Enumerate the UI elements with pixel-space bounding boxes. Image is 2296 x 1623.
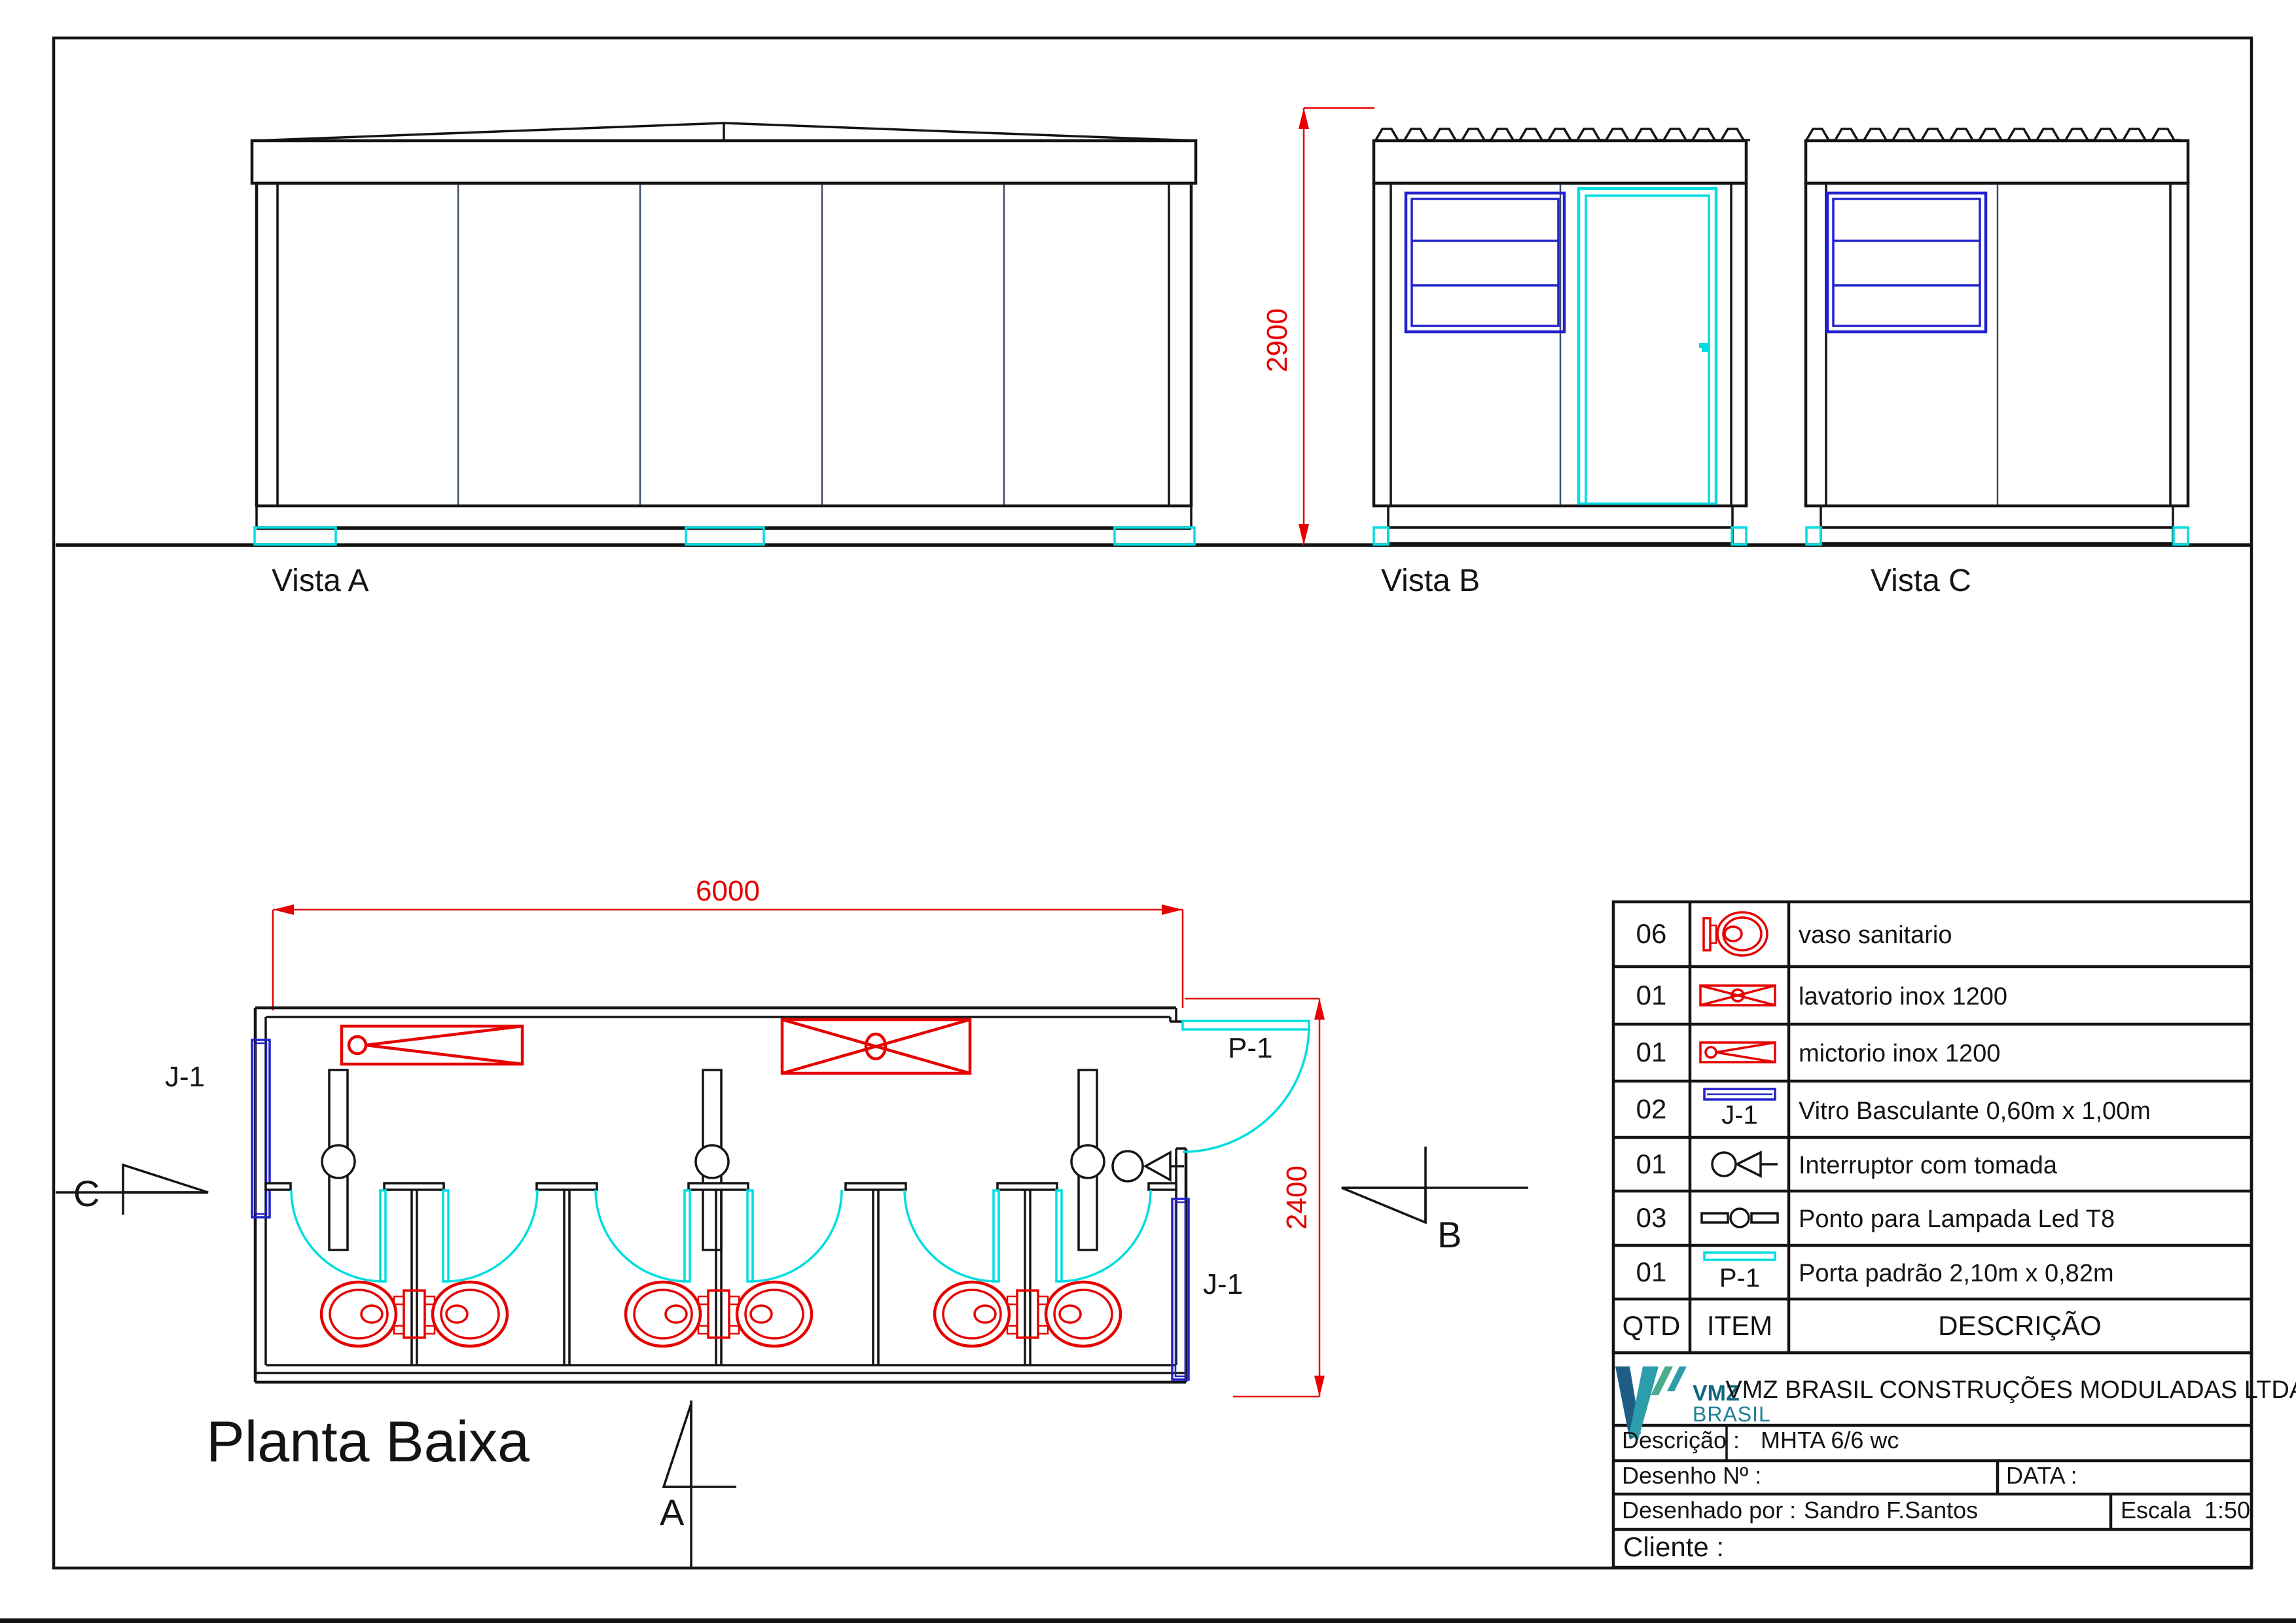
toilet-drain	[666, 1306, 687, 1323]
corner-foot	[1374, 527, 1388, 544]
stall-door-leaf	[1056, 1190, 1062, 1281]
stall-door-arc	[446, 1190, 537, 1281]
company-name: VMZ BRASIL CONSTRUÇÕES MODULADAS LTDA.	[1725, 1375, 2296, 1404]
door-tag: P-1	[1228, 1032, 1272, 1064]
legend-description: Interruptor com tomada	[1799, 1152, 2058, 1179]
cistern-lug	[1007, 1326, 1017, 1334]
led-lamp-fixture	[696, 1070, 728, 1250]
description-header: DESCRIÇÃO	[1938, 1310, 2102, 1341]
width-dim-label: 6000	[696, 875, 760, 907]
cistern-lug	[1038, 1326, 1048, 1334]
icon-line	[1716, 1043, 1775, 1052]
led-lamp-icon	[1702, 1209, 1778, 1227]
toilet-bowl-inner	[1054, 1290, 1112, 1338]
cistern-lug	[394, 1326, 404, 1334]
window-tag-left: J-1	[165, 1061, 205, 1093]
arrowhead-up	[1314, 999, 1325, 1020]
stall-door-leaf	[443, 1190, 448, 1281]
icon-drain	[1706, 1047, 1716, 1058]
qty-value: 01	[1636, 1257, 1667, 1287]
arrowhead-down	[1299, 524, 1309, 545]
marker-triangle	[123, 1165, 208, 1192]
toilet-bowl-inner	[634, 1290, 692, 1338]
louver-window	[1827, 193, 1986, 332]
switch-outlet-plan	[1113, 1151, 1184, 1181]
cistern	[404, 1291, 425, 1338]
toilet-plan-icon	[1704, 912, 1767, 955]
legend-description: lavatorio inox 1200	[1799, 983, 2007, 1010]
bottom-rail	[1388, 506, 1732, 527]
height-dim-label: 2900	[1261, 308, 1293, 372]
sink-icon	[1700, 986, 1775, 1005]
lamp-circle	[322, 1145, 355, 1178]
scale-value: 1:50	[2204, 1497, 2250, 1524]
legend-description: Ponto para Lampada Led T8	[1799, 1205, 2115, 1233]
cistern-lug	[698, 1296, 708, 1304]
arrowhead-left	[273, 904, 294, 915]
skid-block	[255, 527, 336, 544]
urinal-icon	[1700, 1043, 1775, 1062]
jamb-stub	[846, 1183, 906, 1190]
legend-description: mictorio inox 1200	[1799, 1040, 2000, 1067]
stall-door-arc	[750, 1190, 842, 1281]
cistern-lug	[394, 1296, 404, 1304]
description-value: MHTA 6/6 wc	[1761, 1427, 1899, 1454]
sheet-bottom-edge	[0, 1618, 2296, 1623]
louver-window-inner	[1833, 199, 1980, 326]
icon-lamp-bar	[1702, 1213, 1728, 1222]
stall-door-leaf	[685, 1190, 690, 1281]
icon-lamp-bar	[1751, 1213, 1778, 1222]
toilet-pair	[935, 1282, 1121, 1346]
lamp-circle	[1071, 1145, 1104, 1178]
toilet-pair	[321, 1282, 507, 1346]
legend-description: Vitro Basculante 0,60m x 1,00m	[1799, 1097, 2151, 1125]
cistern-lug	[1007, 1296, 1017, 1304]
jamb-stub	[266, 1183, 291, 1190]
jamb-stub	[384, 1183, 444, 1190]
drawn-by-label: Desenhado por :	[1622, 1497, 1796, 1524]
client-label: Cliente :	[1623, 1531, 1724, 1562]
toilet-drain	[751, 1306, 772, 1323]
section-c-label: C	[73, 1173, 99, 1214]
icon-drain	[1725, 927, 1742, 941]
cistern	[1017, 1291, 1038, 1338]
cistern-lug	[729, 1326, 739, 1334]
icon-circle	[1712, 1152, 1736, 1176]
toilet-bowl-inner	[441, 1290, 499, 1338]
vista-a-label: Vista A	[272, 563, 369, 598]
depth-dim-label: 2400	[1281, 1166, 1313, 1230]
stall-door-leaf	[994, 1190, 999, 1281]
qty-header: QTD	[1623, 1310, 1681, 1341]
led-lamp-fixture	[1071, 1070, 1104, 1250]
qty-value: 01	[1636, 1149, 1667, 1179]
corner-foot	[1806, 527, 1821, 544]
fascia-band	[1806, 141, 2188, 183]
corner-foot	[1732, 527, 1746, 544]
qty-value: 03	[1636, 1202, 1667, 1233]
louver-window	[1406, 193, 1564, 332]
title-block: VMZ BRASIL VMZ BRASIL CONSTRUÇÕES MODULA…	[1613, 1353, 2296, 1567]
stall-door-leaf	[380, 1190, 386, 1281]
icon-cistern	[1704, 918, 1710, 950]
qty-value: 01	[1636, 1037, 1667, 1067]
marker-triangle	[1342, 1188, 1426, 1222]
side-elevation-b: Vista B	[1374, 129, 1750, 598]
switch-outlet-icon	[1712, 1152, 1778, 1176]
item-tag: J-1	[1721, 1101, 1758, 1130]
stall-door-arc	[1059, 1190, 1151, 1281]
lamp-circle	[696, 1145, 728, 1178]
window-tag-right: J-1	[1203, 1268, 1243, 1300]
corner-foot	[2174, 527, 2188, 544]
jamb-stub	[537, 1183, 597, 1190]
toilet-bowl	[321, 1282, 396, 1346]
switch-triangle	[1145, 1152, 1170, 1180]
drawing-sheet: { "views": { "vista_a_label": "Vista A",…	[0, 0, 2296, 1623]
cistern-lug	[1038, 1296, 1048, 1304]
section-marker-a: A	[660, 1400, 736, 1567]
jamb-stub	[1149, 1183, 1176, 1190]
plan-title: Planta Baixa	[206, 1409, 529, 1474]
legend-description: Porta padrão 2,10m x 0,82m	[1799, 1260, 2114, 1287]
window-icon	[1704, 1089, 1775, 1099]
louver-window-inner	[1412, 199, 1558, 326]
wall-body	[257, 183, 1191, 506]
urinal-line	[366, 1026, 522, 1045]
cistern-lug	[425, 1296, 435, 1304]
toilet-bowl	[433, 1282, 507, 1346]
drawing-number-label: Desenho Nº :	[1622, 1462, 1761, 1489]
toilet-pair	[626, 1282, 812, 1346]
arrowhead-down	[1314, 1376, 1325, 1397]
date-label: DATA :	[2006, 1462, 2077, 1489]
switch-circle	[1113, 1151, 1143, 1181]
scale-label: Escala	[2121, 1497, 2192, 1524]
icon-door-bar	[1704, 1253, 1775, 1260]
corrugated-roof	[1806, 129, 2181, 140]
corrugated-roof	[1376, 129, 1750, 140]
stall-door-arc	[596, 1190, 687, 1281]
floor-plan: 6000 2400 J-	[56, 875, 1528, 1567]
toilet-bowl	[737, 1282, 812, 1346]
entry-door	[1579, 188, 1716, 504]
icon-line	[1716, 1052, 1775, 1062]
stall-door-arc	[905, 1190, 996, 1281]
urinal-line	[366, 1045, 522, 1064]
stall-door-leaf	[747, 1190, 753, 1281]
bottom-rail	[1821, 506, 2173, 527]
toilet-drain	[446, 1306, 467, 1323]
entry-door-plan: P-1	[1183, 1021, 1309, 1152]
cistern-lug	[698, 1326, 708, 1334]
toilet-bowl-inner	[330, 1290, 387, 1338]
item-tag: P-1	[1719, 1264, 1760, 1293]
urinal-fixture	[342, 1026, 522, 1064]
base-rail	[1821, 527, 2173, 543]
sheet-canvas: Vista A Vista B 2900	[0, 0, 2296, 1623]
toilet-bowl-inner	[943, 1290, 1001, 1338]
icon-triangle	[1737, 1152, 1761, 1176]
door-leaf	[1183, 1021, 1309, 1029]
section-b-label: B	[1437, 1214, 1462, 1255]
arrowhead-up	[1299, 108, 1309, 129]
qty-value: 06	[1636, 918, 1667, 949]
cistern	[708, 1291, 729, 1338]
section-marker-c: C	[56, 1165, 208, 1215]
door-icon	[1704, 1253, 1775, 1260]
icon-lamp-circle	[1731, 1209, 1749, 1227]
toilet-bowl	[1046, 1282, 1121, 1346]
vista-c-label: Vista C	[1871, 563, 1971, 598]
base-rail	[1388, 527, 1732, 543]
side-elevation-c: Vista C	[1806, 129, 2188, 598]
toilet-bowl-inner	[745, 1290, 803, 1338]
front-elevation: Vista A	[252, 123, 1196, 598]
fascia-band	[252, 141, 1196, 183]
width-dimension: 6000	[273, 875, 1183, 1010]
section-marker-b: B	[1342, 1147, 1528, 1255]
toilet-drain	[361, 1306, 382, 1323]
urinal-drain	[349, 1037, 366, 1054]
jamb-stub	[689, 1183, 748, 1190]
led-lamp-fixture	[322, 1070, 355, 1250]
item-header: ITEM	[1707, 1310, 1772, 1341]
cistern-lug	[425, 1326, 435, 1334]
description-label: Descrição :	[1622, 1427, 1740, 1454]
toilet-bowl	[626, 1282, 700, 1346]
door-handle	[1699, 343, 1710, 352]
skid-block	[686, 527, 764, 544]
vista-b-label: Vista B	[1381, 563, 1480, 598]
entry-door-inner	[1586, 196, 1709, 504]
toilet-drain	[975, 1306, 996, 1323]
marker-triangle	[664, 1404, 691, 1487]
qty-value: 02	[1636, 1094, 1667, 1124]
legend-description: vaso sanitario	[1799, 921, 1952, 949]
skid-block	[1115, 527, 1194, 544]
bottom-rail	[257, 506, 1191, 527]
jamb-stub	[997, 1183, 1057, 1190]
toilet-drain	[1060, 1306, 1081, 1323]
logo-country: BRASIL	[1693, 1402, 1771, 1426]
cistern-lug	[729, 1296, 739, 1304]
fascia-band	[1374, 141, 1746, 183]
drawn-by-value: Sandro F.Santos	[1804, 1497, 1978, 1524]
toilet-bowl	[935, 1282, 1009, 1346]
arrowhead-right	[1162, 904, 1183, 915]
sink-fixture	[782, 1020, 970, 1073]
height-dimension: 2900	[1261, 108, 1374, 545]
section-a-label: A	[660, 1491, 685, 1533]
legend-table: 06 vaso sanitario 01 lavatorio inox 1200…	[1613, 902, 2251, 1353]
qty-value: 01	[1636, 980, 1667, 1010]
